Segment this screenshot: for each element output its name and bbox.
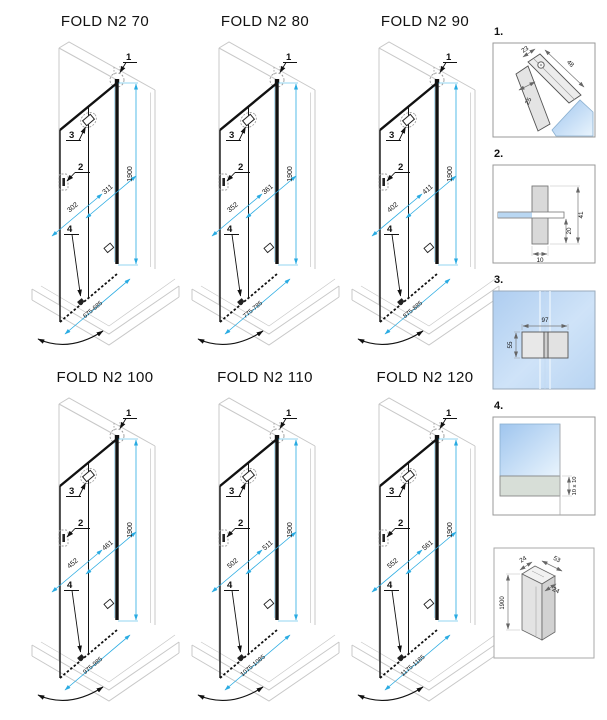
svg-text:97: 97	[541, 317, 549, 324]
svg-text:3: 3	[389, 130, 394, 141]
detail-3-hinge: 97 55	[492, 290, 596, 390]
shower-tray	[32, 635, 179, 701]
fold-diagram: FOLD N2 80	[185, 10, 345, 354]
swing-direction-arrow	[358, 687, 423, 700]
shower-tray	[352, 635, 499, 701]
svg-text:2: 2	[398, 518, 403, 529]
svg-text:3: 3	[69, 486, 74, 497]
callout-2: 2	[387, 162, 410, 181]
dimensions	[52, 83, 138, 334]
wall-outline	[219, 398, 315, 660]
height-dim: 1900	[447, 166, 454, 182]
diagram-title: FOLD N2 70	[25, 10, 185, 34]
diagram-title: FOLD N2 90	[345, 10, 505, 34]
bottom-guide	[237, 298, 245, 305]
fold-width-dim: 561	[421, 539, 435, 552]
svg-text:3: 3	[229, 130, 234, 141]
swing-direction-arrow	[198, 687, 263, 700]
svg-text:2: 2	[238, 518, 243, 529]
callout-3: 3	[66, 127, 86, 141]
callout-3: 3	[226, 127, 246, 141]
callout-3: 3	[66, 483, 86, 497]
callout-1: 1	[120, 408, 137, 429]
svg-text:2: 2	[78, 162, 83, 173]
callout-1: 1	[120, 52, 137, 73]
callout-4: 4	[384, 224, 401, 296]
callout-2: 2	[387, 518, 410, 537]
height-dim: 1900	[287, 166, 294, 182]
wall-outline	[59, 42, 155, 304]
door-isometric-drawing: 1 3 2 4	[29, 390, 182, 710]
bottom-pivot	[424, 243, 434, 252]
dimension-labels: 1900 411 402 875-885	[386, 166, 454, 320]
bottom-pivot	[424, 599, 434, 608]
svg-text:4: 4	[387, 580, 393, 591]
callout-2: 2	[67, 518, 90, 537]
wall-outline	[379, 398, 475, 660]
svg-text:1900: 1900	[500, 596, 506, 610]
dimensions	[372, 439, 458, 690]
callout-1: 1	[440, 408, 457, 429]
svg-text:10 x 10: 10 x 10	[572, 476, 578, 495]
dimension-labels: 1900 511 502 1075-1085	[226, 522, 294, 678]
svg-text:4: 4	[387, 224, 393, 235]
spec-sheet: FOLD N2 70	[0, 0, 607, 720]
callout-4: 4	[64, 224, 81, 296]
door-isometric-drawing: 1 3 2 4	[189, 390, 342, 710]
callout-3: 3	[226, 483, 246, 497]
svg-text:1: 1	[446, 52, 452, 63]
diagram-title: FOLD N2 100	[25, 366, 185, 390]
svg-text:2: 2	[238, 162, 243, 173]
dimensions	[212, 439, 298, 690]
detail-label	[494, 526, 602, 539]
detail-2-wall-profile-section: 41 20 10	[492, 164, 596, 264]
dimensions	[372, 83, 458, 334]
fold-width-dim: 511	[261, 540, 274, 553]
callout-4: 4	[224, 224, 241, 296]
dimension-labels: 1900 461 452 975-985	[66, 522, 134, 676]
dimensions	[212, 83, 298, 334]
callout-1: 1	[440, 52, 457, 73]
diagram-title: FOLD N2 80	[185, 10, 345, 34]
detail-1-corner-profile: 23 48 25	[492, 42, 596, 138]
detail-label: 2.	[494, 148, 602, 161]
wall-outline	[379, 42, 475, 304]
bottom-pivot	[104, 599, 114, 608]
svg-text:2: 2	[78, 518, 83, 529]
detail-label: 4.	[494, 400, 602, 413]
svg-text:2: 2	[398, 162, 403, 173]
callout-2: 2	[67, 162, 90, 181]
shower-tray	[192, 635, 339, 701]
door-isometric-drawing: 1 3 2 4	[189, 34, 342, 354]
fold-width-dim: 411	[421, 184, 434, 197]
fold-diagram: FOLD N2 90	[345, 10, 505, 354]
fixed-width-dim: 302	[66, 201, 80, 214]
svg-text:4: 4	[227, 224, 233, 235]
svg-text:4: 4	[67, 224, 73, 235]
bottom-pivot	[264, 599, 274, 608]
svg-text:4: 4	[227, 580, 233, 591]
svg-text:1: 1	[286, 408, 292, 419]
svg-text:1: 1	[286, 52, 292, 63]
detail-5-vertical-profile: 24 53 24 1900	[492, 546, 596, 660]
callout-4: 4	[384, 580, 401, 652]
detail-label: 1.	[494, 26, 602, 39]
diagram-title: FOLD N2 110	[185, 366, 345, 390]
seal-profile	[500, 476, 560, 496]
shower-tray	[192, 279, 339, 345]
svg-text:3: 3	[69, 130, 74, 141]
svg-text:41: 41	[578, 211, 585, 219]
bottom-guide	[397, 298, 405, 305]
bottom-pivot	[264, 243, 274, 252]
callout-2: 2	[227, 162, 250, 181]
svg-text:10: 10	[536, 257, 544, 264]
diagram-title: FOLD N2 120	[345, 366, 505, 390]
svg-text:20: 20	[566, 227, 573, 235]
fixed-width-dim: 352	[226, 201, 240, 214]
height-dim: 1900	[127, 166, 134, 182]
door-isometric-drawing: 1 3 2 4	[29, 34, 182, 354]
swing-direction-arrow	[38, 331, 103, 344]
fold-diagram: FOLD N2 100	[25, 366, 185, 710]
svg-text:3: 3	[389, 486, 394, 497]
fixed-width-dim: 402	[386, 201, 400, 214]
bottom-pivot	[104, 243, 114, 252]
svg-text:1: 1	[126, 408, 132, 419]
svg-text:55: 55	[507, 341, 514, 349]
swing-direction-arrow	[198, 331, 263, 344]
callout-1: 1	[280, 52, 297, 73]
callout-4: 4	[224, 580, 241, 652]
fixed-width-dim: 452	[66, 557, 80, 570]
callout-3: 3	[386, 483, 406, 497]
bottom-guide	[397, 654, 405, 661]
fixed-width-dim: 502	[226, 557, 240, 570]
dimension-labels: 1900 361 352 775-785	[226, 166, 294, 320]
svg-text:4: 4	[67, 580, 73, 591]
hinge	[522, 332, 568, 358]
fold-diagram: FOLD N2 110	[185, 366, 345, 710]
shower-tray	[352, 279, 499, 345]
svg-text:3: 3	[229, 486, 234, 497]
callout-3: 3	[386, 127, 406, 141]
callout-4: 4	[64, 580, 81, 652]
fold-width-dim: 361	[261, 183, 275, 196]
height-dim: 1900	[127, 522, 134, 538]
bottom-guide	[77, 654, 85, 661]
fold-width-dim: 311	[101, 184, 114, 197]
wall-outline	[59, 398, 155, 660]
detail-callouts: 1. 23 48 25 2.	[492, 26, 602, 670]
callout-1: 1	[280, 408, 297, 429]
door-isometric-drawing: 1 3 2 4	[349, 34, 502, 354]
swing-direction-arrow	[38, 687, 103, 700]
fold-diagram: FOLD N2 120	[345, 366, 505, 710]
dimensions	[52, 439, 138, 690]
wall-outline	[219, 42, 315, 304]
u-channel-profile	[522, 566, 555, 640]
svg-text:1: 1	[446, 408, 452, 419]
fold-diagram: FOLD N2 70	[25, 10, 185, 354]
glass-panel	[500, 424, 560, 476]
fixed-width-dim: 552	[386, 557, 400, 570]
fold-width-dim: 461	[101, 539, 115, 552]
swing-direction-arrow	[358, 331, 423, 344]
detail-4-bottom-seal: 10 x 10	[492, 416, 596, 516]
height-dim: 1900	[447, 522, 454, 538]
detail-label: 3.	[494, 274, 602, 287]
diagram-grid: FOLD N2 70	[25, 10, 505, 710]
bottom-guide	[77, 298, 85, 305]
callout-2: 2	[227, 518, 250, 537]
dimension-labels: 1900 311 302 675-685	[66, 166, 134, 320]
shower-tray	[32, 279, 179, 345]
bottom-guide	[237, 654, 245, 661]
height-dim: 1900	[287, 522, 294, 538]
svg-text:1: 1	[126, 52, 132, 63]
dimension-labels: 1900 561 552 1175-1185	[386, 522, 454, 678]
door-isometric-drawing: 1 3 2 4	[349, 390, 502, 710]
